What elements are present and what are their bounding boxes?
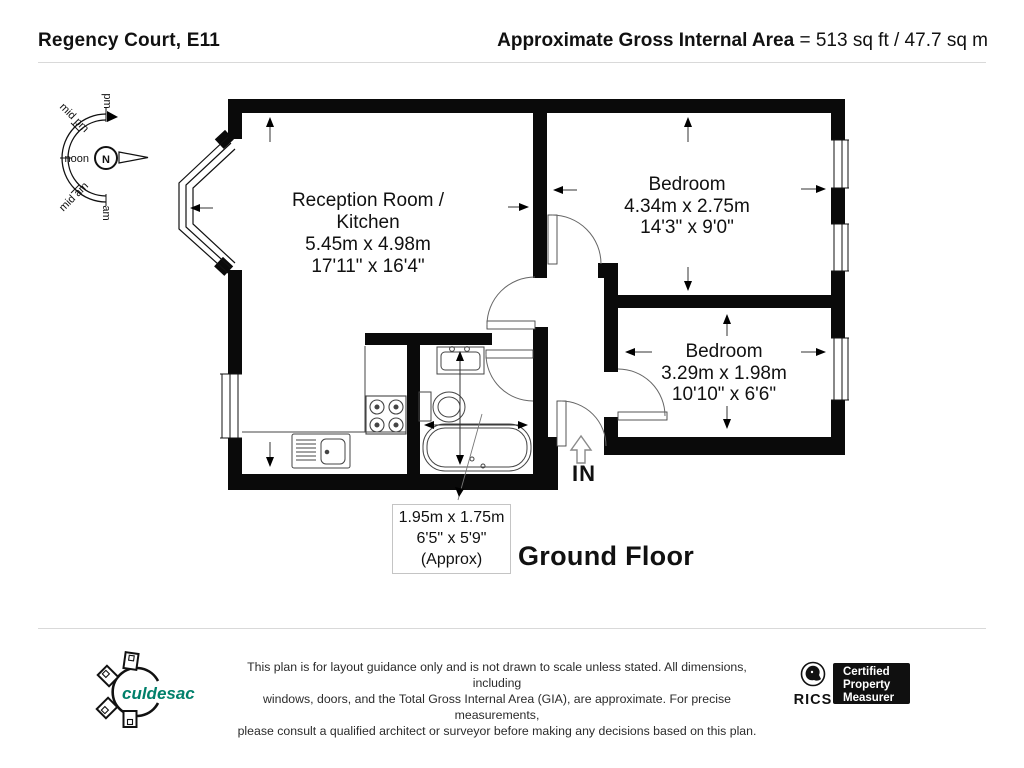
disclaimer-text: This plan is for layout guidance only an…	[236, 659, 758, 739]
reception-imperial: 17'11" x 16'4"	[311, 256, 424, 277]
wall-reception-right	[533, 99, 547, 278]
bathroom-fixtures	[419, 347, 531, 471]
floorplan-page: Regency Court, E11 Approximate Gross Int…	[0, 0, 1024, 768]
wall-bathroom-top	[365, 333, 492, 345]
compass-north-label: N	[102, 154, 110, 166]
reception-name-line2: Kitchen	[336, 212, 399, 233]
label-bedroom1: Bedroom 4.34m x 2.75m 14'3" x 9'0"	[624, 174, 750, 238]
wall-bathroom-left	[407, 345, 420, 475]
wall-bedroom2-left	[604, 276, 618, 372]
compass-rose: N pm mid pm noon mid am am	[57, 93, 148, 220]
wall-left-mid	[228, 270, 242, 374]
disclaimer-line-3: please consult a qualified architect or …	[236, 723, 758, 739]
wall-bottom-right	[604, 437, 845, 455]
door-bedroom1	[548, 215, 601, 264]
wall-bedroom-divider	[618, 295, 845, 308]
bedroom2-name: Bedroom	[685, 341, 762, 362]
north-arrow-icon	[119, 152, 148, 163]
culdesac-logo-text: culdesac	[122, 684, 195, 703]
badge-line-2: Property	[843, 679, 910, 692]
stove-icon	[366, 396, 406, 434]
floorplan-svg: N pm mid pm noon mid am am	[0, 0, 1024, 768]
wall-right-1	[831, 99, 845, 140]
door-bedroom2	[618, 369, 667, 420]
wall-right-3	[831, 271, 845, 338]
window-bedroom1-b	[831, 224, 849, 271]
bay-window	[179, 137, 235, 273]
window-reception-left	[220, 374, 242, 438]
label-reception: Reception Room / Kitchen 5.45m x 4.98m 1…	[292, 190, 445, 277]
rics-lion-eye	[811, 671, 813, 673]
walls	[214, 99, 845, 490]
bathroom-approx: (Approx)	[393, 549, 510, 570]
entrance-label: IN	[572, 461, 596, 486]
disclaimer-line-2: windows, doors, and the Total Gross Inte…	[236, 691, 758, 723]
compass-pm-label: pm	[101, 93, 113, 108]
kitchen-fixtures	[242, 346, 406, 468]
badge-line-3: Measurer	[843, 692, 910, 705]
window-bedroom1-a	[831, 140, 849, 188]
wall-bedroom2-left-lower	[604, 417, 618, 439]
window-bedroom2	[831, 338, 849, 400]
compass-am-label: am	[100, 205, 112, 220]
doors	[486, 215, 667, 446]
bathroom-metric: 1.95m x 1.75m	[393, 507, 510, 528]
bedroom1-name: Bedroom	[648, 174, 725, 195]
certified-property-measurer-badge: Certified Property Measurer	[833, 663, 910, 704]
door-bathroom	[486, 350, 533, 401]
bedroom1-metric: 4.34m x 2.75m	[624, 196, 750, 217]
bathroom-imperial: 6'5" x 5'9"	[393, 528, 510, 549]
footer-divider	[38, 628, 986, 629]
toilet-icon	[419, 392, 465, 422]
bathroom-dimension-box: 1.95m x 1.75m 6'5" x 5'9" (Approx)	[392, 504, 511, 574]
rics-label: RICS	[794, 692, 833, 708]
wall-right-2	[831, 188, 845, 224]
kitchen-sink-icon	[292, 434, 350, 468]
compass-noon-label: noon	[65, 153, 89, 165]
bedroom2-metric: 3.29m x 1.98m	[661, 363, 787, 384]
wall-right-4	[831, 400, 845, 455]
bedroom2-imperial: 10'10" x 6'6"	[672, 384, 776, 405]
reception-metric: 5.45m x 4.98m	[305, 234, 431, 255]
badge-line-1: Certified	[843, 666, 910, 679]
wall-left-upper	[228, 99, 242, 139]
floor-label: Ground Floor	[518, 541, 694, 572]
rics-lion-icon	[806, 666, 821, 681]
wall-left-lower	[228, 438, 242, 478]
door-hall-reception	[487, 277, 535, 329]
wall-hall-step	[598, 263, 618, 278]
label-bedroom2: Bedroom 3.29m x 1.98m 10'10" x 6'6"	[661, 341, 787, 405]
entrance-marker: IN	[571, 436, 596, 486]
wall-entry-jamb	[545, 437, 558, 474]
culdesac-logo: culdesac	[97, 652, 196, 727]
rics-logo: RICS	[794, 663, 833, 709]
bedroom1-imperial: 14'3" x 9'0"	[640, 217, 734, 238]
reception-name-line1: Reception Room /	[292, 190, 445, 211]
compass-arc-arrowhead	[107, 111, 118, 122]
wall-bottom-left	[228, 474, 558, 490]
entrance-arrow-icon	[571, 436, 591, 463]
disclaimer-line-1: This plan is for layout guidance only an…	[236, 659, 758, 691]
